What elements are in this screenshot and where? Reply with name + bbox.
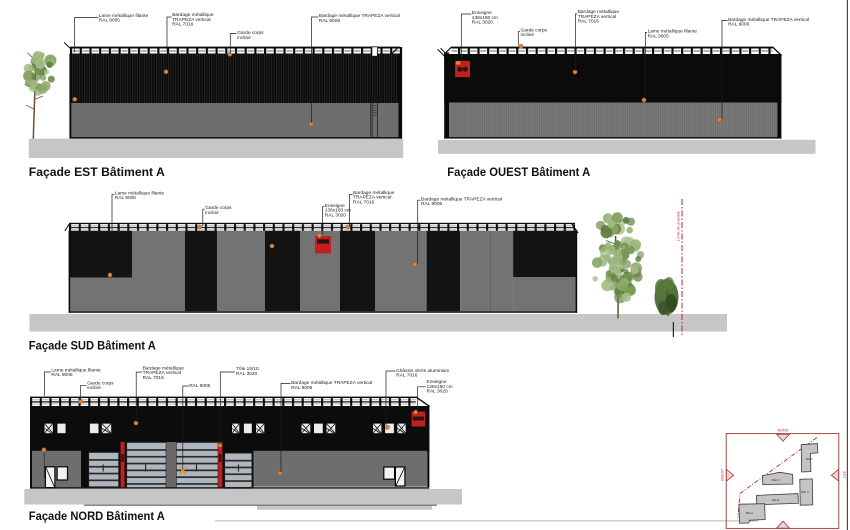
svg-text:RAL 7016: RAL 7016	[578, 19, 599, 25]
svg-text:RAL 3020: RAL 3020	[472, 20, 493, 26]
svg-text:RAL 7016: RAL 7016	[172, 22, 193, 28]
svg-text:RAL 9005: RAL 9005	[99, 18, 120, 24]
svg-text:Bât B: Bât B	[772, 498, 779, 502]
svg-text:RAL 3020: RAL 3020	[427, 389, 448, 395]
svg-text:Bât D: Bât D	[772, 478, 780, 482]
svg-text:NORD: NORD	[778, 429, 789, 433]
svg-text:Bât A: Bât A	[746, 511, 753, 515]
svg-text:RAL 9006: RAL 9006	[421, 201, 442, 207]
svg-text:RAL 9005: RAL 9005	[51, 372, 72, 378]
svg-text:RAL 3020: RAL 3020	[325, 212, 346, 218]
svg-text:Limite de propriété: Limite de propriété	[677, 211, 681, 241]
svg-text:OUEST: OUEST	[720, 468, 724, 481]
svg-text:RAL 7016: RAL 7016	[353, 199, 374, 205]
svg-text:RAL 7016: RAL 7016	[143, 375, 164, 381]
svg-text:RAL 3020: RAL 3020	[236, 371, 257, 377]
svg-text:incliné: incliné	[87, 385, 101, 391]
svg-text:RAL 9006: RAL 9006	[189, 383, 210, 389]
svg-text:Façade SUD Bâtiment A: Façade SUD Bâtiment A	[29, 339, 156, 353]
svg-text:incliné: incliné	[237, 35, 251, 41]
svg-text:RAL 9005: RAL 9005	[115, 195, 136, 201]
svg-text:EST: EST	[842, 472, 846, 480]
svg-text:RAL 9006: RAL 9006	[291, 385, 312, 391]
svg-text:Façade NORD Bâtiment A: Façade NORD Bâtiment A	[29, 509, 165, 523]
svg-text:RAL 9006: RAL 9006	[728, 22, 749, 28]
svg-text:incliné: incliné	[205, 210, 219, 216]
svg-text:Bât F: Bât F	[806, 457, 813, 461]
svg-text:Façade EST Bâtiment A: Façade EST Bâtiment A	[29, 165, 165, 179]
svg-text:RAL 9005: RAL 9005	[648, 34, 669, 40]
svg-text:RAL 9006: RAL 9006	[319, 18, 340, 24]
svg-text:RAL 7016: RAL 7016	[396, 373, 417, 379]
svg-text:incliné: incliné	[521, 32, 535, 38]
svg-text:Bât C: Bât C	[802, 490, 810, 494]
svg-text:Façade OUEST Bâtiment A: Façade OUEST Bâtiment A	[447, 165, 590, 179]
